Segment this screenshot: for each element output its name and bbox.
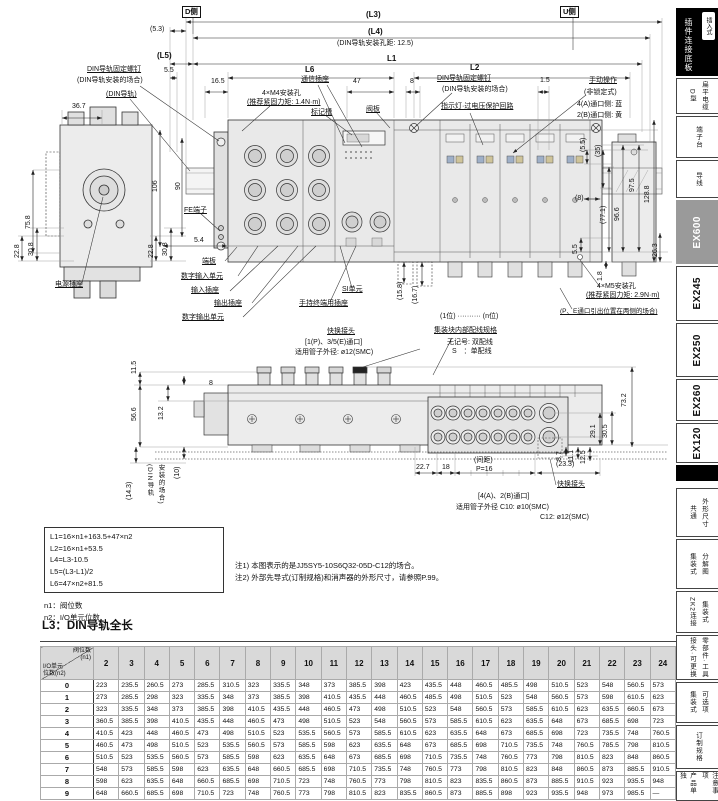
l3-length-cell: 635.5 xyxy=(220,764,245,776)
l3-length-cell: 523 xyxy=(195,740,220,752)
l3-length-cell: 385.5 xyxy=(195,704,220,716)
l3-length-cell: 523 xyxy=(422,704,447,716)
table-row: 2323335.5348373385.5398410.5435.5448460.… xyxy=(41,704,676,716)
l3-length-cell: 685.5 xyxy=(220,776,245,788)
l3-length-cell: 573 xyxy=(650,680,675,692)
l3-length-cell: 573 xyxy=(574,692,599,704)
handheld-terminal-label: 手持终端用插座 xyxy=(299,300,348,308)
sidebar-tab-terminal-block[interactable]: 端子台 xyxy=(676,116,718,158)
l3-length-cell: 573 xyxy=(195,752,220,764)
dim-5-5: 5.5 xyxy=(164,67,174,75)
length-formula-box: L1=16×n1+163.5+47×n2 L2=16×n1+53.5 L4=L3… xyxy=(44,527,224,593)
l3-length-cell: 798 xyxy=(473,764,498,776)
l3-length-cell: 798 xyxy=(625,740,650,752)
l3-length-cell: 373 xyxy=(169,704,194,716)
l3-length-cell: 848 xyxy=(625,752,650,764)
dim-90: 90 xyxy=(175,182,182,190)
l3-length-cell: 698 xyxy=(549,728,574,740)
l3-length-cell: 635.5 xyxy=(296,752,321,764)
manual-port-b-label: 2(B)通口侧: 黄 xyxy=(577,112,622,120)
l3-length-cell: 885.5 xyxy=(625,764,650,776)
formula-l4: L4=L3-10.5 xyxy=(50,554,218,566)
table-corner-cell: 阀位数 (n1) I/O单元 位数(n2) xyxy=(41,647,94,680)
l3-length-cell: 623 xyxy=(119,776,144,788)
l3-length-cell: 348 xyxy=(296,680,321,692)
l3-length-cell: 873 xyxy=(524,776,549,788)
dim-26-3: 26.3 xyxy=(652,243,659,257)
right-side-view xyxy=(612,134,656,276)
l3-length-cell: 523 xyxy=(574,680,599,692)
dim-13-2: 13.2 xyxy=(158,406,165,420)
plugin-baseplate-label: 插件连接底板 xyxy=(683,18,694,72)
io-unit-count-header: 3 xyxy=(41,716,94,728)
m5-hole-label: 4×M5安装孔 xyxy=(597,283,636,291)
manual-port-a-label: 4(A)通口侧: 蓝 xyxy=(577,101,622,109)
l3-length-cell: 760.5 xyxy=(346,776,371,788)
l3-length-cell: 623 xyxy=(271,752,296,764)
din-rail-case-note: (DIN导轨 安装的场合) xyxy=(144,464,165,505)
l3-length-cell: 460.5 xyxy=(169,728,194,740)
l3-length-cell: 335.5 xyxy=(271,680,296,692)
l3-length-cell: 498 xyxy=(524,680,549,692)
l3-length-cell: 748 xyxy=(549,740,574,752)
l3-length-cell: 223 xyxy=(94,680,119,692)
l3-length-cell: 823 xyxy=(372,788,397,800)
custom-specs-label: 订制规格 xyxy=(693,732,703,762)
l3-length-cell: 548 xyxy=(448,704,473,716)
io-unit-count-header: 4 xyxy=(41,728,94,740)
l3-length-cell: 498 xyxy=(448,692,473,704)
l3-length-cell: 610.5 xyxy=(397,728,422,740)
dim-11-5: 11.5 xyxy=(131,361,138,374)
valve-count-header: 18 xyxy=(498,647,523,680)
l3-length-cell: 735.5 xyxy=(448,752,473,764)
l3-length-cell: 923 xyxy=(524,788,549,800)
table-body: 0223235.5260.5273285.5310.5323335.534837… xyxy=(41,680,676,800)
l3-length-cell: 935.5 xyxy=(549,788,574,800)
l3-length-cell: 710.5 xyxy=(422,752,447,764)
l3-length-cell: 648 xyxy=(397,740,422,752)
l3-length-cell: 398 xyxy=(144,716,169,728)
dim-15-8: (15.8) xyxy=(397,282,404,300)
din-screw-right-case-label: (DIN导轨安装的场合) xyxy=(442,86,508,94)
l3-length-cell: 635.5 xyxy=(144,776,169,788)
dim-77-1: (77.1) xyxy=(600,206,607,224)
l3-length-cell: 560.5 xyxy=(321,728,346,740)
dim-96-6: 96.6 xyxy=(614,207,621,221)
l3-length-cell: 885.5 xyxy=(473,788,498,800)
l3-length-cell: 435.5 xyxy=(346,692,371,704)
l3-length-cell: 510.5 xyxy=(245,728,270,740)
end-plate-label: 端板 xyxy=(202,258,216,266)
l3-length-cell: 460.5 xyxy=(397,692,422,704)
din-rail-case-line1: (DIN导轨 xyxy=(144,464,154,505)
valve-plate-label: 阀板 xyxy=(366,106,380,114)
l3-length-cell: 760.5 xyxy=(498,752,523,764)
l3-length-cell: 473 xyxy=(195,728,220,740)
valve-count-header: 24 xyxy=(650,647,675,680)
l3-length-cell: 460.5 xyxy=(473,680,498,692)
l3-length-cell: 523 xyxy=(119,752,144,764)
dim-5-5-top: (5.5) xyxy=(580,138,587,152)
sidebar-tab-custom-specs[interactable]: 订制规格 xyxy=(676,725,718,769)
l3-length-cell: 385.5 xyxy=(271,692,296,704)
l3-length-cell: 398 xyxy=(372,680,397,692)
l3-length-cell: 473 xyxy=(346,704,371,716)
l3-length-cell: 323 xyxy=(245,680,270,692)
table-row: 4410.5423448460.5473498510.5523535.5560.… xyxy=(41,728,676,740)
dim-22-7: 22.7 xyxy=(416,464,430,472)
sidebar-tab-plugin-baseplate[interactable]: 插件连接底板 插入式 xyxy=(676,8,718,76)
l3-length-cell: 798 xyxy=(397,776,422,788)
valve-count-header: 23 xyxy=(625,647,650,680)
dim-5-5-bottom: 5.5 xyxy=(572,244,579,254)
l3-length-cell: 635.5 xyxy=(372,740,397,752)
l3-length-cell: 410.5 xyxy=(169,716,194,728)
dim-l3: (L3) xyxy=(366,10,381,20)
formula-l6: L6=47×n2+81.5 xyxy=(50,578,218,590)
l3-length-cell: 823 xyxy=(524,764,549,776)
l3-length-cell: 810.5 xyxy=(346,788,371,800)
ex250-label: EX250 xyxy=(692,334,703,367)
l3-length-cell: 310.5 xyxy=(220,680,245,692)
quick-fitting-bottom-tube2: C12: ø12(SMC) xyxy=(540,514,589,522)
l3-length-cell: 685.5 xyxy=(372,752,397,764)
terminal-block-label: 端子台 xyxy=(693,126,703,149)
valve-count-header: 2 xyxy=(94,647,119,680)
m4-hole-label: 4×M4安装孔 xyxy=(262,90,301,98)
l3-length-cell: 610.5 xyxy=(625,692,650,704)
l3-length-cell: 460.5 xyxy=(94,740,119,752)
valve-count-header: 3 xyxy=(119,647,144,680)
dim-l6: L6 xyxy=(305,65,314,75)
table-row: 0223235.5260.5273285.5310.5323335.534837… xyxy=(41,680,676,692)
sidebar-tab-precautions[interactable]: 产品单独 注意事项 xyxy=(676,771,718,801)
sidebar-tab-ex260[interactable]: EX260 xyxy=(676,379,718,421)
corner-n2: 位数(n2) xyxy=(43,671,66,678)
l3-length-cell: 748 xyxy=(625,728,650,740)
din-rail-case-line2: 安装的场合) xyxy=(155,464,165,505)
io-unit-count-header: 2 xyxy=(41,704,94,716)
pitch-value: P=16 xyxy=(476,466,493,474)
quick-fitting-bottom-tube: 适用管子外径 C10: ø10(SMC) xyxy=(456,504,549,512)
l3-length-cell: 498 xyxy=(296,716,321,728)
l3-length-cell: 648 xyxy=(169,776,194,788)
manual-override-label: 手动操作 xyxy=(589,77,617,85)
l3-length-cell: 723 xyxy=(650,716,675,728)
dim-l4: (L4) xyxy=(368,27,383,37)
l3-length-cell: 685.5 xyxy=(144,788,169,800)
quick-fitting-top-ports: [1(P)、3/5(E)通口] xyxy=(305,339,362,347)
l3-length-cell: 510.5 xyxy=(397,704,422,716)
common-label: 共通 xyxy=(687,505,697,520)
l3-length-cell: — xyxy=(650,788,675,800)
lead-wire-label: 导线 xyxy=(693,172,703,187)
flat-cable-label: 扁平电缆 xyxy=(699,81,709,111)
l3-length-cell: 335.5 xyxy=(119,704,144,716)
l3-length-cell: 948 xyxy=(574,788,599,800)
l3-length-cell: 498 xyxy=(372,704,397,716)
options-label: 可选项 xyxy=(699,691,709,714)
dim-23-3: (23.3) xyxy=(556,461,574,469)
l3-length-cell: 523 xyxy=(498,692,523,704)
din-rail-label: (DIN导轨) xyxy=(106,91,137,99)
l3-length-cell: 448 xyxy=(296,704,321,716)
l3-length-cell: 673 xyxy=(498,728,523,740)
dim-106: 106 xyxy=(152,180,159,192)
l3-length-cell: 685.5 xyxy=(448,740,473,752)
l3-length-cell: 448 xyxy=(220,716,245,728)
table-title: L3：DIN导轨全长 xyxy=(42,617,133,633)
l3-length-cell: 298 xyxy=(144,692,169,704)
dim-35: (35) xyxy=(595,145,602,157)
l3-length-cell: 535.5 xyxy=(144,752,169,764)
replaceable-fittings-label: 接头·可更换 xyxy=(687,637,697,678)
l3-length-cell: 585.5 xyxy=(372,728,397,740)
sidebar-tab-ex250[interactable]: EX250 xyxy=(676,323,718,377)
precautions-label: 注意事项 xyxy=(699,772,718,800)
l3-length-cell: 810.5 xyxy=(650,740,675,752)
io-unit-count-header: 0 xyxy=(41,680,94,692)
l3-length-cell: 510.5 xyxy=(94,752,119,764)
dim-30-8-side: 30.8 xyxy=(28,242,35,256)
valve-count-header: 12 xyxy=(346,647,371,680)
l3-din-rail-table: 阀位数 (n1) I/O单元 位数(n2) 234567891011121314… xyxy=(40,646,676,800)
l3-length-cell: 435.5 xyxy=(422,680,447,692)
l3-length-cell: 498 xyxy=(144,740,169,752)
dim-l1: L1 xyxy=(387,54,396,64)
l3-length-cell: 560.5 xyxy=(473,704,498,716)
sidebar-tab-ex600[interactable]: EX600 xyxy=(676,200,718,264)
l3-length-cell: 348 xyxy=(220,692,245,704)
d-type-label: D型 xyxy=(687,89,697,102)
fe-terminal-label: FE端子 xyxy=(184,207,207,215)
l3-length-cell: 498 xyxy=(220,728,245,740)
l3-length-cell: 710.5 xyxy=(195,788,220,800)
l3-length-cell: 560.5 xyxy=(169,752,194,764)
ex120-label: EX120 xyxy=(692,427,703,460)
l3-length-cell: 673 xyxy=(574,716,599,728)
ex245-label: EX245 xyxy=(692,277,703,310)
l3-length-cell: 473 xyxy=(271,716,296,728)
table-row: 6510.5523535.5560.5573585.5598623635.564… xyxy=(41,752,676,764)
io-unit-count-header: 9 xyxy=(41,788,94,800)
formula-l1: L1=16×n1+163.5+47×n2 xyxy=(50,531,218,543)
exploded-view-label: 分解图 xyxy=(699,553,709,576)
l3-length-cell: 860.5 xyxy=(498,776,523,788)
l3-length-cell: 260.5 xyxy=(144,680,169,692)
l3-length-cell: 373 xyxy=(245,692,270,704)
valve-count-header: 8 xyxy=(245,647,270,680)
dim-12-5: 12.5 xyxy=(580,450,587,464)
d-side-marker: D侧 xyxy=(182,6,201,18)
l3-length-cell: 435.5 xyxy=(195,716,220,728)
side-view xyxy=(46,107,152,298)
dim-22-8-side: 22.8 xyxy=(14,244,21,258)
footnote-2: 注2) 外部先导式(订制规格)和消声器的外形尺寸，请参照P.99。 xyxy=(235,572,443,584)
l3-length-cell: 285.5 xyxy=(195,680,220,692)
l3-length-cell: 548 xyxy=(372,716,397,728)
l3-length-cell: 560.5 xyxy=(549,692,574,704)
l3-length-cell: 323 xyxy=(169,692,194,704)
l3-length-cell: 523 xyxy=(346,716,371,728)
l3-length-cell: 273 xyxy=(94,692,119,704)
l3-length-cell: 573 xyxy=(422,716,447,728)
valve-count-header: 10 xyxy=(296,647,321,680)
din-screw-label: DIN导轨固定螺钉 xyxy=(87,66,141,74)
sidebar-tab-lead-wire[interactable]: 导线 xyxy=(676,160,718,198)
table-row: 3360.5385.5398410.5435.5448460.547349851… xyxy=(41,716,676,728)
l3-length-cell: 748 xyxy=(245,788,270,800)
sidebar-tab-dimensions[interactable]: 共通 外形尺寸 xyxy=(676,488,718,537)
l3-length-cell: 685.5 xyxy=(524,728,549,740)
l3-length-cell: 735.5 xyxy=(524,740,549,752)
l3-length-cell: 660.5 xyxy=(271,764,296,776)
table-row: 9648660.5685.5698710.5723748760.57737988… xyxy=(41,788,676,800)
dim-75-8: 75.8 xyxy=(25,215,32,229)
dim-29-1: 29.1 xyxy=(590,424,597,438)
sidebar-tab-options[interactable]: 集装式 可选项 xyxy=(676,682,718,723)
l3-length-cell: 860.5 xyxy=(422,788,447,800)
valve-count-header: 14 xyxy=(397,647,422,680)
quick-fitting-bottom-ports: [4(A)、2(B)通口] xyxy=(478,493,529,501)
io-unit-count-header: 7 xyxy=(41,764,94,776)
l3-length-cell: 648 xyxy=(549,716,574,728)
l3-length-cell: 473 xyxy=(119,740,144,752)
l3-length-cell: 560.5 xyxy=(625,680,650,692)
valve-count-header: 17 xyxy=(473,647,498,680)
table-header-row: 阀位数 (n1) I/O单元 位数(n2) 234567891011121314… xyxy=(41,647,676,680)
dim-8-right: (8) xyxy=(575,195,584,203)
din-screw-right-label: DIN导轨固定螺钉 xyxy=(437,75,491,83)
l3-length-cell: 773 xyxy=(524,752,549,764)
dim-l5: (L5) xyxy=(157,51,172,61)
l3-length-cell: 585.5 xyxy=(220,752,245,764)
dimension-drawing-top xyxy=(0,0,676,334)
dimension-drawing-bottom xyxy=(0,335,676,530)
dimensions-label: 外形尺寸 xyxy=(699,498,709,528)
ex260-label: EX260 xyxy=(692,384,703,417)
l3-length-cell: 598 xyxy=(94,776,119,788)
l3-length-cell: 835.5 xyxy=(473,776,498,788)
l3-length-cell: 748 xyxy=(397,764,422,776)
dim-97-5: 97.5 xyxy=(629,178,636,192)
plug-in-badge: 插入式 xyxy=(702,12,715,40)
l3-length-cell: 360.5 xyxy=(94,716,119,728)
l3-length-cell: 510.5 xyxy=(169,740,194,752)
valve-count-header: 21 xyxy=(574,647,599,680)
l3-length-cell: 810.5 xyxy=(422,776,447,788)
l3-length-cell: 948 xyxy=(650,776,675,788)
l3-length-cell: 760.5 xyxy=(574,740,599,752)
io-unit-count-header: 1 xyxy=(41,692,94,704)
page-edge-tabs: 插件连接底板 插入式 D型 扁平电缆 端子台 导线 EX600 EX245 EX… xyxy=(676,0,718,801)
dim-73-2: 73.2 xyxy=(621,393,628,407)
manifold-label-1: 集装式 xyxy=(687,553,697,576)
dim-5-3: (5.3) xyxy=(150,26,164,34)
l3-length-cell: 773 xyxy=(448,764,473,776)
l3-length-cell: 698 xyxy=(397,752,422,764)
l3-length-cell: 660.5 xyxy=(119,788,144,800)
l3-length-cell: 760.5 xyxy=(650,728,675,740)
l3-length-cell: 635.5 xyxy=(448,728,473,740)
l3-length-cell: 660.5 xyxy=(625,704,650,716)
quick-fitting-top-tube: 适用管子外径: ø12(SMC) xyxy=(295,349,373,357)
footnotes: 注1) 本图表示的是JJ5SY5-10S6Q32-05D-C12的场合。 注2)… xyxy=(235,560,443,584)
l3-length-cell: 673 xyxy=(346,752,371,764)
l3-length-cell: 373 xyxy=(321,680,346,692)
dim-30-8-front: 30.8 xyxy=(162,242,169,256)
l3-length-cell: 710.5 xyxy=(498,740,523,752)
l3-length-cell: 573 xyxy=(346,728,371,740)
dim-l2: L2 xyxy=(470,63,479,73)
l3-length-cell: 510.5 xyxy=(549,680,574,692)
def-n1: n1：阀位数 xyxy=(44,600,100,612)
l3-length-cell: 535.5 xyxy=(296,728,321,740)
l3-length-cell: 560.5 xyxy=(397,716,422,728)
l3-length-cell: 723 xyxy=(296,776,321,788)
l3-length-cell: 823 xyxy=(599,752,624,764)
l3-length-cell: 423 xyxy=(119,728,144,740)
l3-length-cell: 785.5 xyxy=(599,740,624,752)
l3-length-cell: 598 xyxy=(245,752,270,764)
manifold-label-2: 集装式 xyxy=(699,601,709,624)
digital-input-label: 数字输入单元 xyxy=(181,273,223,281)
l3-length-cell: 848 xyxy=(549,764,574,776)
l3-length-cell: 685.5 xyxy=(296,764,321,776)
io-unit-count-header: 6 xyxy=(41,752,94,764)
comm-socket-label: 通信插座 xyxy=(301,76,329,84)
l3-length-cell: 423 xyxy=(397,680,422,692)
dim-22-8-front: 22.8 xyxy=(148,244,155,258)
l3-length-cell: 523 xyxy=(271,728,296,740)
dim-1-8: 1.8 xyxy=(597,271,604,281)
l3-length-cell: 748 xyxy=(473,752,498,764)
l3-length-cell: 585.5 xyxy=(524,704,549,716)
din-screw-case-label: (DIN导轨安装的场合) xyxy=(77,77,143,85)
sidebar-tab-ex120[interactable]: EX120 xyxy=(676,423,718,463)
dim-8-7: 8.7 xyxy=(556,451,563,461)
power-socket-label: 电源插座 xyxy=(55,281,83,289)
sidebar-tab-zk2-connection[interactable]: ZK2连接 集装式 xyxy=(676,591,718,633)
l3-length-cell: 335.5 xyxy=(195,692,220,704)
pitch-label: (间距) xyxy=(474,457,493,465)
quick-fitting-bottom-label: 快换接头 xyxy=(557,481,585,489)
l3-length-cell: 398 xyxy=(220,704,245,716)
l3-length-cell: 860.5 xyxy=(650,752,675,764)
sidebar-tab-parts-tools[interactable]: 接头·可更换 零部件·工具 xyxy=(676,635,718,680)
l3-length-cell: 598 xyxy=(169,764,194,776)
m4-torque-label: (推荐紧固力矩: 1.4N·m) xyxy=(247,99,321,107)
dim-36-7: 36.7 xyxy=(72,103,86,111)
dim-10: (10) xyxy=(174,467,181,479)
l3-length-cell: 623 xyxy=(422,728,447,740)
title-rule xyxy=(40,641,676,642)
sidebar-tab-exploded-view[interactable]: 集装式 分解图 xyxy=(676,539,718,589)
table-row: 7548573585.5598623635.5648660.5685.56987… xyxy=(41,764,676,776)
io-unit-count-header: 8 xyxy=(41,776,94,788)
l3-length-cell: 835.5 xyxy=(397,788,422,800)
l3-length-cell: 535.5 xyxy=(220,740,245,752)
l3-length-cell: 898 xyxy=(498,788,523,800)
l3-length-cell: 573 xyxy=(271,740,296,752)
l3-length-cell: 585.5 xyxy=(448,716,473,728)
l3-length-cell: 660.5 xyxy=(195,776,220,788)
dim-8-b: 8 xyxy=(209,380,213,388)
valve-count-header: 13 xyxy=(372,647,397,680)
sidebar-tab-ex245[interactable]: EX245 xyxy=(676,266,718,321)
sidebar-tab-d-flat-cable[interactable]: D型 扁平电缆 xyxy=(676,78,718,114)
